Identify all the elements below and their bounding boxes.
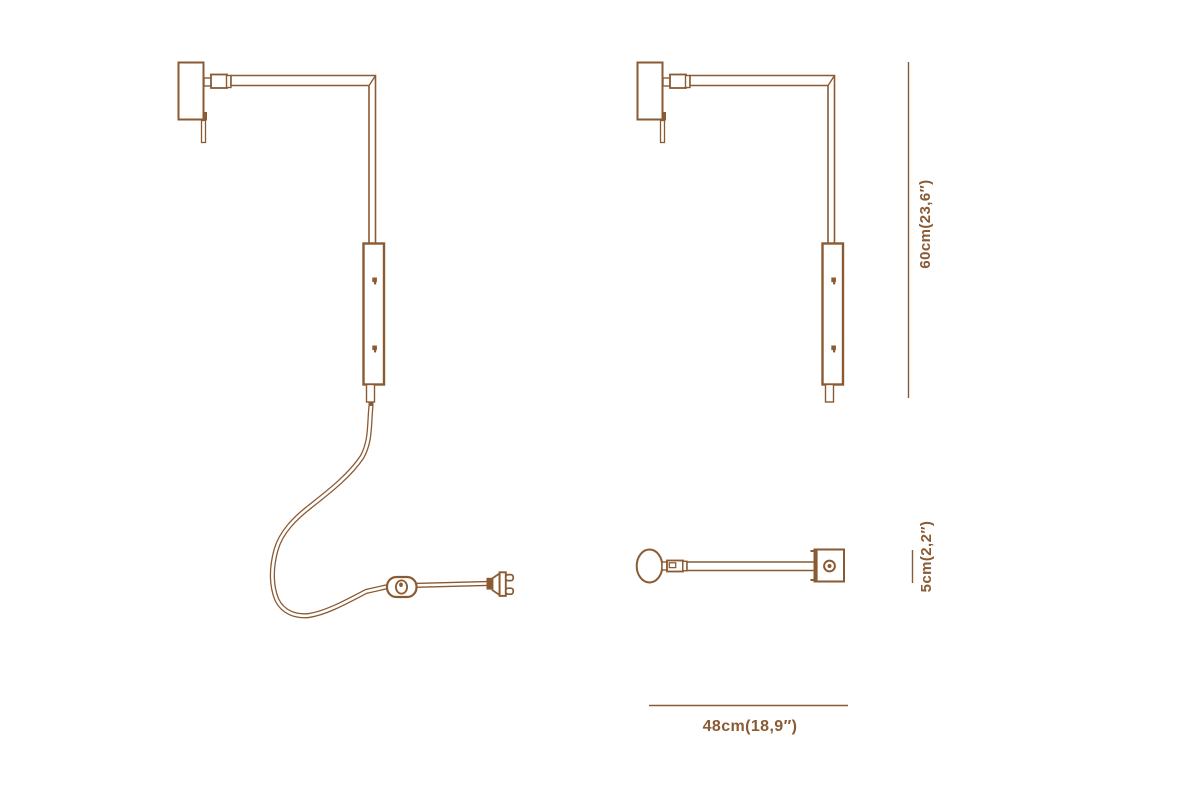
pivot-bolt-center [828,564,832,568]
lamp-head [637,550,663,583]
switch-button-dot [399,583,403,588]
front-view-with-cord [179,63,514,616]
front-view-plain [638,63,844,403]
lamp-dimension-diagram: 60cm(23,6″) 5cm(2,2″) 48cm(18,9″) [0,0,1200,800]
dimension-label-depth: 5cm(2,2″) [918,521,935,593]
plug-pin [506,588,513,594]
dimension-height: 60cm(23,6″) [909,62,934,398]
top-view [637,550,844,583]
dimension-depth: 5cm(2,2″) [913,521,935,593]
dimension-label-height: 60cm(23,6″) [917,179,934,268]
dimension-width: 48cm(18,9″) [649,706,848,736]
power-cord [272,406,388,616]
plug-cone [493,573,500,595]
plug-pin [506,575,513,581]
lamp-body [638,63,844,403]
head-joint-detail [669,563,675,568]
plug-body [500,572,506,596]
arm-top-view [687,562,815,571]
dimension-drawing: 60cm(23,6″) 5cm(2,2″) 48cm(18,9″) [0,0,1200,800]
lamp-body [179,63,385,403]
dimension-label-width: 48cm(18,9″) [703,718,798,735]
